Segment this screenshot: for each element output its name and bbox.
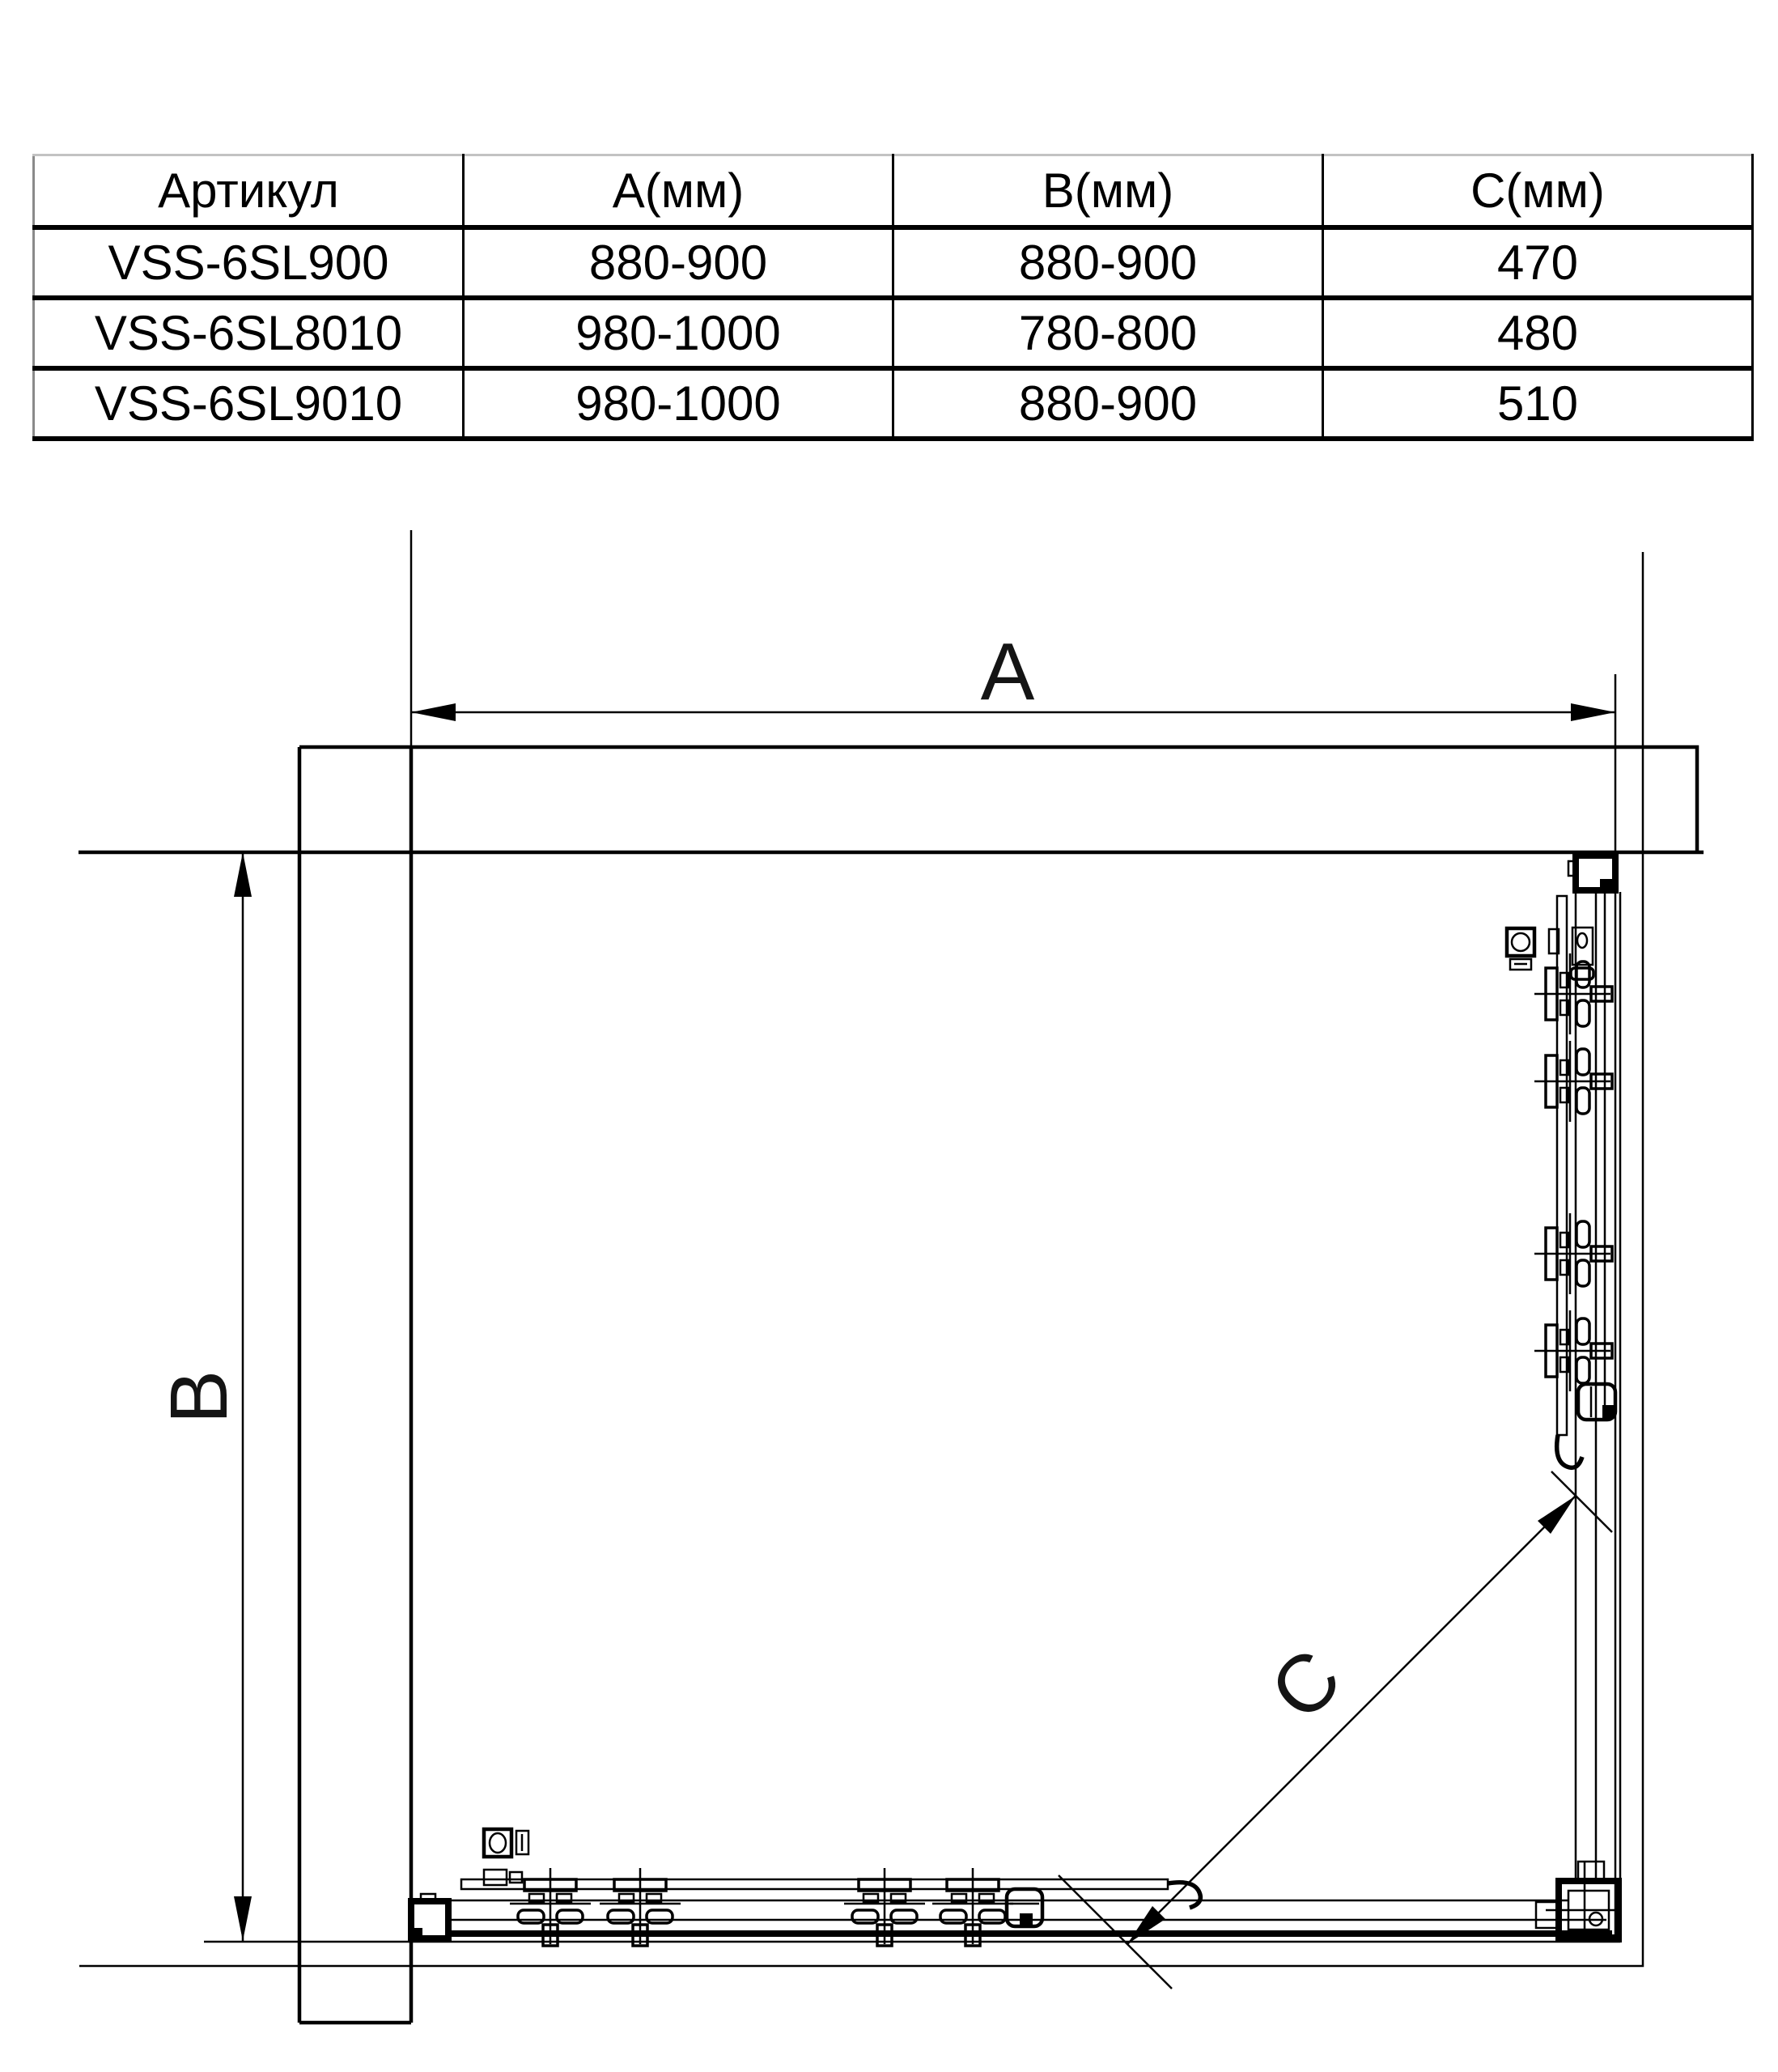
- left-wall-panel: [299, 747, 411, 2023]
- outer-boundary: [79, 552, 1643, 1966]
- dim-label-c: C: [1253, 1632, 1358, 1737]
- dimension-a: A: [411, 530, 1615, 747]
- roller-detail-icon-bottom: [484, 1829, 528, 1857]
- bottom-door-glass: [461, 1879, 1168, 1889]
- dim-label-a: A: [981, 626, 1035, 717]
- enclosure-top-view-drawing: A B: [0, 0, 1778, 2072]
- dim-label-b: B: [154, 1370, 244, 1424]
- roller-detail-icon-right: [1507, 928, 1534, 970]
- bottom-door-assembly: [204, 1829, 1620, 1946]
- top-wall-panel: [79, 747, 1704, 852]
- arrowhead-right: [1571, 703, 1615, 721]
- right-door-handle-hook: [1557, 1435, 1582, 1467]
- wall-profile-bracket-top: [1568, 856, 1615, 890]
- spec-sheet-page: АртикулA(мм)B(мм)C(мм) VSS-6SL900880-900…: [0, 0, 1778, 2072]
- right-door-glass: [1557, 896, 1567, 1435]
- arrowhead-up: [234, 852, 252, 897]
- right-door-assembly: [1507, 674, 1620, 1942]
- hanger-bracket-bottom: [484, 1870, 522, 1885]
- dimension-c: C: [1059, 1471, 1612, 1989]
- wall-profile-bracket-left: [411, 1894, 448, 1938]
- dimension-b: B: [154, 852, 252, 1941]
- arrowhead-down: [234, 1896, 252, 1941]
- arrowhead-left: [411, 703, 456, 721]
